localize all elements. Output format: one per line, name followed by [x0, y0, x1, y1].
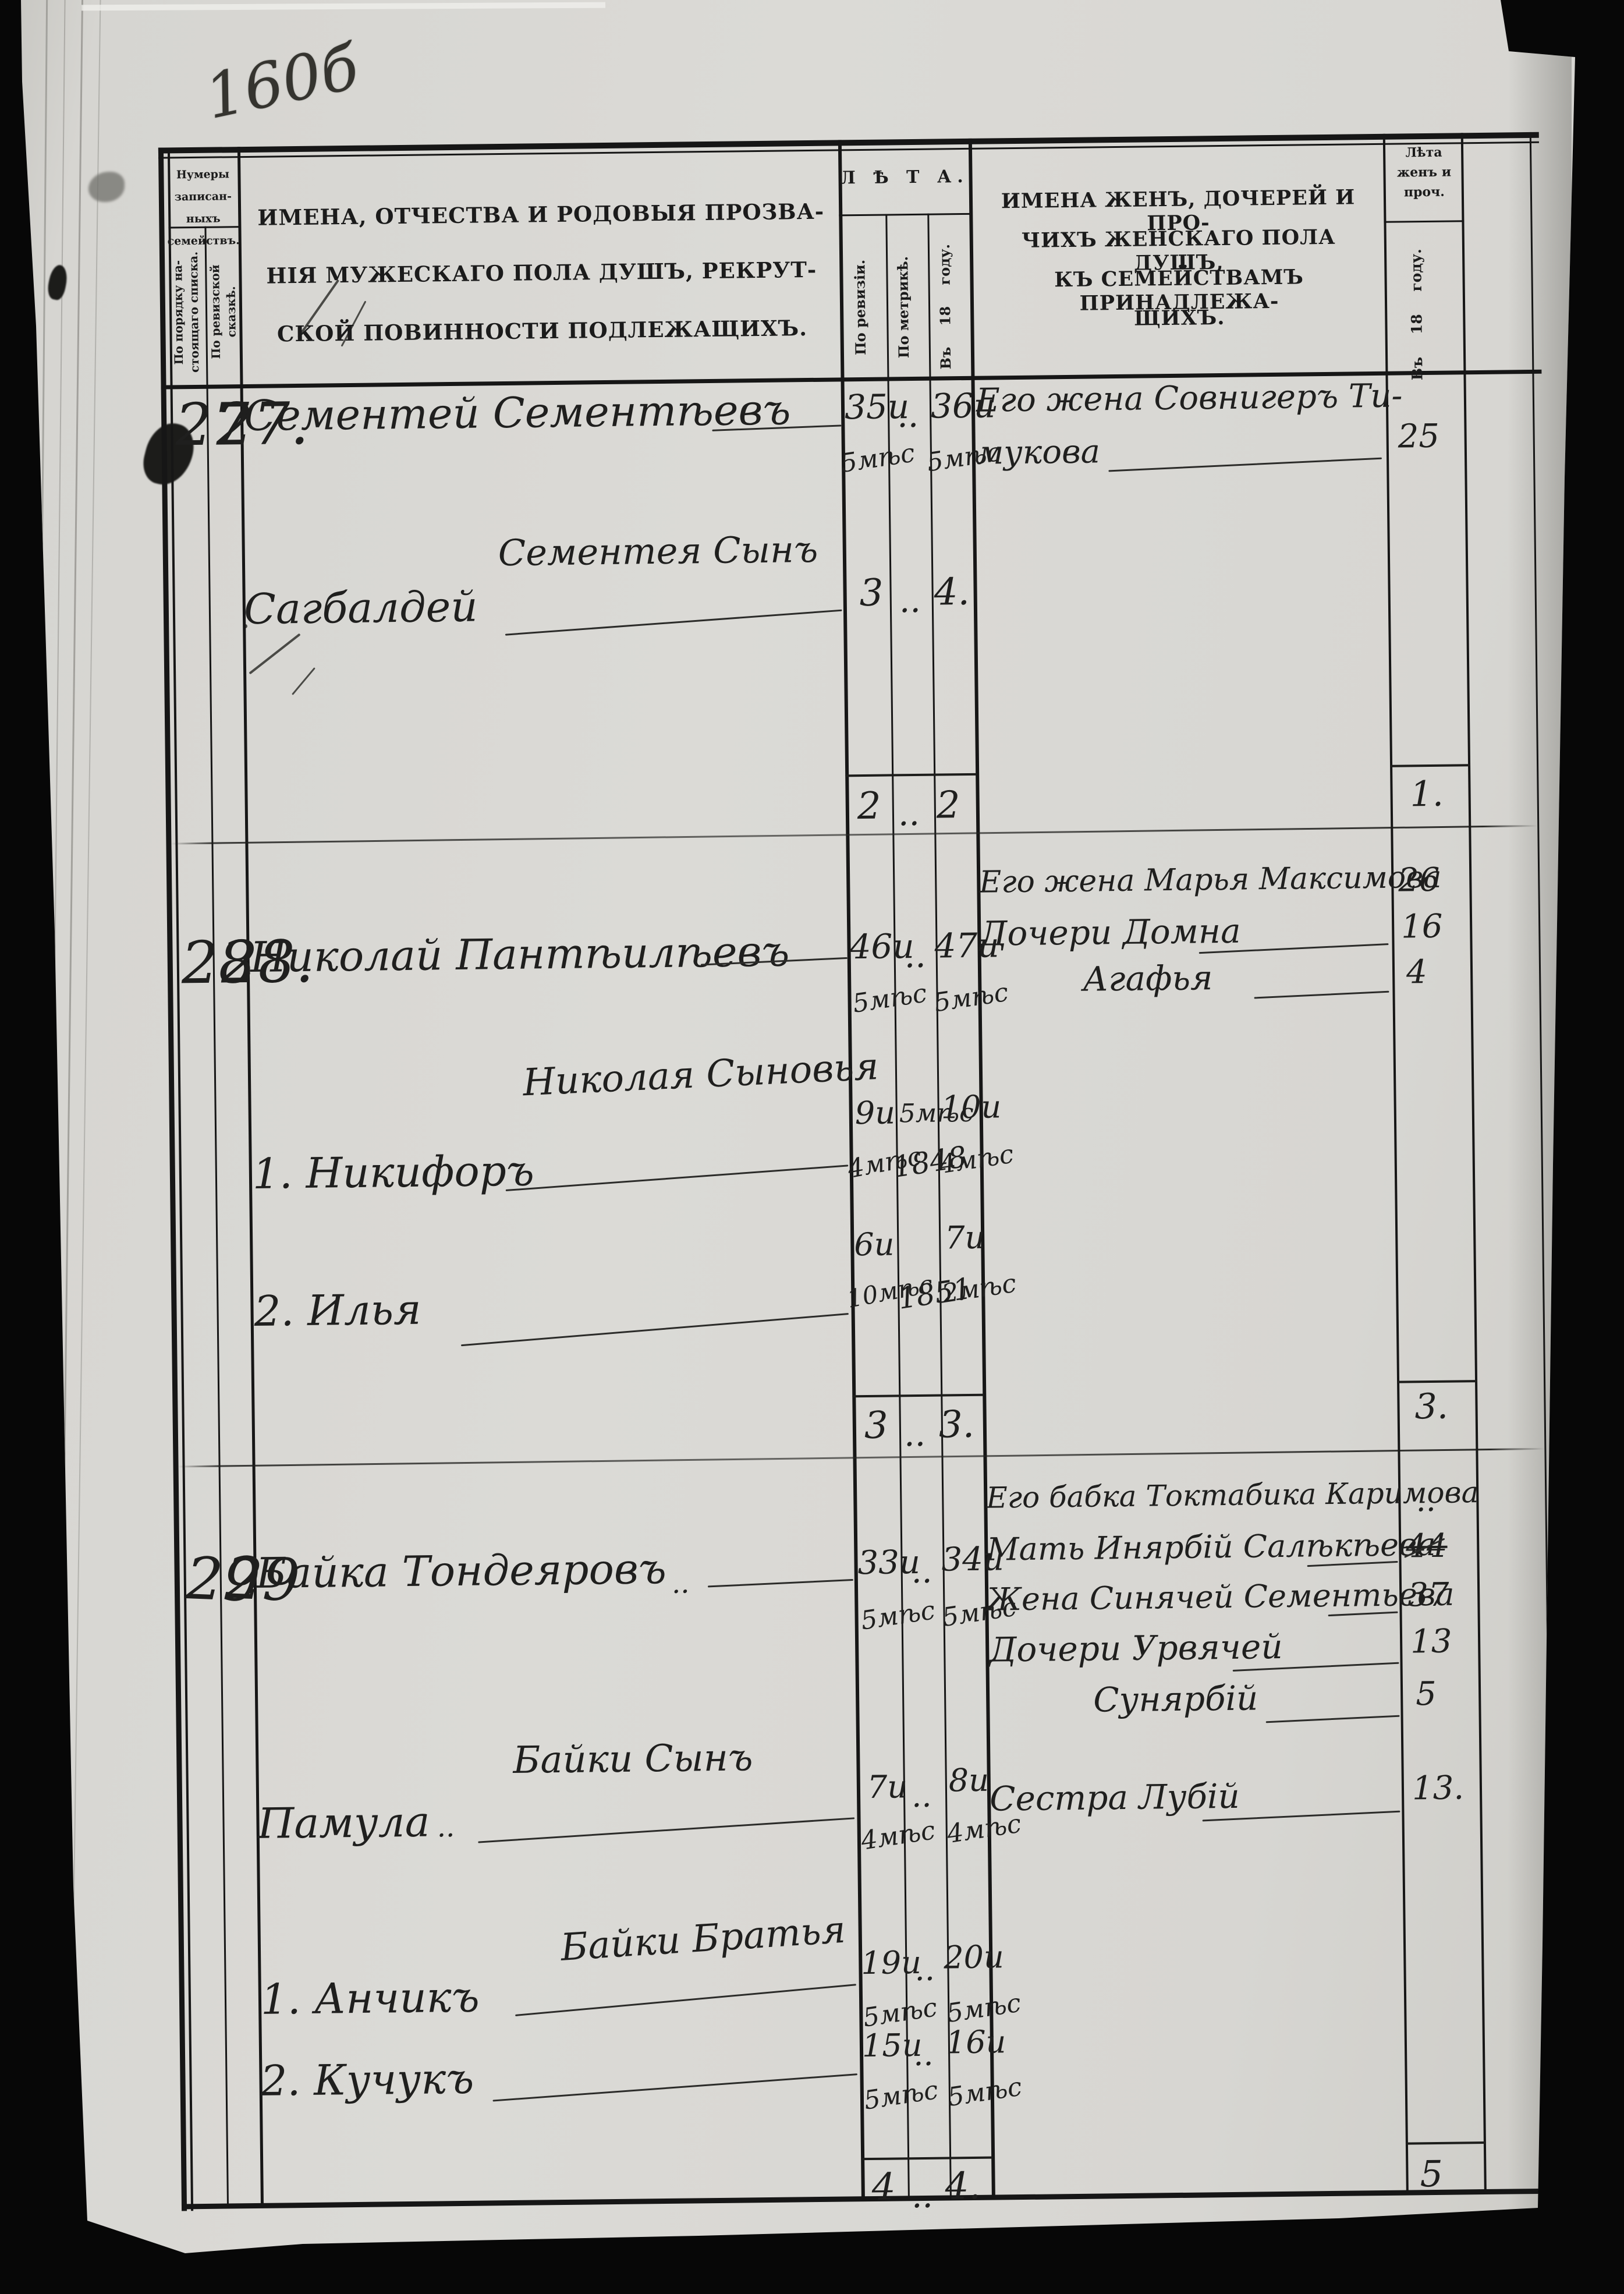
family-28-total-metrics: ..	[904, 1414, 926, 1454]
totals-rule	[845, 773, 977, 777]
divider-metrics-year18	[927, 214, 952, 2200]
totals-rule	[1397, 1380, 1477, 1383]
family-29-brother2-age-metrics: ..	[913, 2036, 934, 2073]
handwritten-dash	[505, 610, 842, 636]
family-28-daughter2-name: Агафья	[1083, 958, 1213, 999]
family-27-wife-age: 25	[1398, 417, 1439, 456]
family-29-son-age-revision-months: 4мѣс	[859, 1815, 937, 1856]
header-males-title-line3: СКОЙ ПОВИННОСТИ ПОДЛЕЖАЩИХЪ.	[245, 314, 839, 347]
family-28-daughter1-name: Дочери Домна	[980, 911, 1241, 954]
header-col-in-year18: Въ 18 году.	[935, 226, 960, 387]
totals-rule	[852, 1394, 984, 1398]
totals-rule	[861, 2157, 992, 2161]
family-29-brother2-age-revision-months: 5мѣс	[862, 2075, 940, 2116]
family-29-total-metrics: ..	[911, 2176, 933, 2215]
handwritten-dash	[478, 1817, 854, 1843]
family-29-brother1-age-year18: 20и	[944, 1938, 1004, 1976]
family-28-total-year18: 3.	[938, 1403, 974, 1447]
family-29-age-year18: 34и	[941, 1540, 1004, 1578]
page-fold-line	[54, 0, 83, 2294]
family-29-total-year18: 4.	[945, 2165, 981, 2208]
family-29-brother1-age-revision: 19и	[861, 1944, 921, 1981]
family-29-grandmother-name: Его бабка Токтабика Каримова	[986, 1475, 1479, 1515]
divider-femaleage-subheader	[1384, 220, 1464, 223]
family-separator	[178, 1448, 1545, 1468]
header-leta-title: Л Ѣ Т А.	[838, 167, 970, 189]
handwritten-dash	[1266, 1715, 1400, 1723]
header-females-age-line3: проч.	[1386, 182, 1463, 202]
ink-smudge	[88, 172, 125, 202]
family-29-brother2-age-year18: 16и	[946, 2023, 1006, 2061]
family-29-grandmother-age: ..	[1416, 1482, 1436, 1518]
scanned-page: 160б Нумеры записан- ныхъ семействъ.	[0, 0, 1624, 2286]
page-fold-line	[26, 0, 48, 2294]
family-28-total-revision: 3	[864, 1404, 888, 1447]
folio-number: 160б	[199, 31, 364, 133]
divider-leta-subheader	[839, 213, 971, 217]
family-29-brother1-name: 1. Анчикъ	[260, 1973, 480, 2024]
header-col-revision-tale: По ревизской сказкѣ.	[207, 239, 239, 385]
divider-order-revision	[204, 226, 229, 2208]
family-27-age-metrics: ..	[897, 395, 919, 435]
family-29-son-age-year18-months: 4мѣс	[945, 1808, 1023, 1849]
family-29-age-revision-months: 5мѣс	[859, 1595, 937, 1636]
family-28-son2-age-revision: 6и	[854, 1226, 895, 1263]
family-28-son1-name: 1. Никифоръ	[252, 1146, 534, 1198]
handwritten-dash	[1108, 458, 1382, 472]
family-28-age-year18: 47и	[934, 925, 999, 965]
handwritten-dash	[708, 1579, 853, 1588]
family-28-daughter2-age: 4	[1406, 953, 1427, 991]
family-27-son-age-revision: 3	[859, 572, 884, 615]
header-females-title-line4: ЩИХЪ.	[978, 304, 1380, 332]
family-29-sister-age: 13.	[1412, 1769, 1465, 1807]
family-29-brother1-age-metrics: ..	[914, 1951, 935, 1988]
divider-revision-metrics	[885, 214, 910, 2200]
family-28-total-women: 3.	[1414, 1386, 1448, 1428]
family-27-son-age-year18: 4.	[934, 571, 970, 614]
header-males-title-line2: НІЯ МУЖЕСКАГО ПОЛА ДУШЪ, РЕКРУТ-	[244, 256, 838, 289]
family-28-wife-age: 26	[1398, 861, 1440, 900]
family-27-son-name: Сагбалдей	[243, 582, 478, 634]
family-28-son1-age-revision: 9и	[854, 1094, 895, 1131]
header-males-title-line1: ИМЕНА, ОТЧЕСТВА И РОДОВЫЯ ПРОЗВА-	[244, 198, 838, 231]
handwritten-dash	[492, 2073, 857, 2101]
family-27-total-year18: 2	[936, 784, 960, 827]
family-29-daughter2-name: Сунярбій	[1093, 1678, 1258, 1719]
family-29-brothers-caption: Байки Братья	[559, 1909, 847, 1970]
family-29-patriarch-name: Байка Тондеяровъ	[256, 1544, 666, 1598]
header-col-by-metrics: По метрикѣ.	[894, 226, 919, 387]
family-29-son-name: Памула	[257, 1797, 430, 1848]
paper-edge-highlight	[81, 2, 605, 11]
ink-blot	[45, 264, 70, 302]
family-28-daughter1-age: 16	[1401, 908, 1443, 946]
family-27-total-revision: 2	[857, 785, 881, 828]
family-29-son-note: ..	[437, 1811, 455, 1843]
family-29-son-age-metrics: ..	[912, 1778, 932, 1814]
revision-table: Нумеры записан- ныхъ семействъ. По поряд…	[168, 132, 1565, 2221]
family-28-sons-caption: Николая Сыновья	[522, 1045, 880, 1104]
family-27-total-metrics: ..	[898, 794, 920, 833]
family-27-son-age-metrics: ..	[899, 580, 921, 620]
header-col-order: По порядку на- стоящаго списка.	[170, 239, 205, 385]
family-28-son2-name: 2. Илья	[254, 1285, 421, 1336]
header-females-age-line2: женъ и	[1385, 162, 1462, 182]
family-29-son-age-revision: 7и	[867, 1768, 908, 1806]
family-29-wife-age: 37	[1407, 1576, 1449, 1615]
family-28-son1-age-year18: 10и	[941, 1088, 1001, 1125]
family-29-sister-name: Сестра Лубій	[990, 1776, 1240, 1819]
family-28-wife-name: Его жена Марья Максимова	[979, 860, 1442, 900]
family-29-brother1-age-year18-months: 5мѣс	[945, 1988, 1023, 2029]
totals-rule	[1406, 2141, 1486, 2145]
family-29-age-year18-months: 5мѣс	[940, 1592, 1018, 1633]
page-fold-line	[68, 0, 101, 2294]
family-28-age-metrics: ..	[904, 936, 926, 975]
totals-rule	[1390, 764, 1470, 767]
family-separator	[171, 825, 1537, 845]
handwritten-dash	[461, 1313, 849, 1346]
family-29-brother2-name: 2. Кучукъ	[260, 2054, 474, 2105]
header-females-age-line1: Лѣта	[1385, 142, 1462, 162]
family-29-total-revision: 4	[871, 2166, 896, 2209]
handwritten-dash	[1254, 991, 1389, 999]
family-27-wife-line2: мукова	[977, 433, 1101, 472]
header-family-numbers-line1: Нумеры записан-	[164, 163, 242, 208]
handwritten-dash	[515, 1984, 856, 2016]
divider-femaleages-margin	[1461, 133, 1487, 2194]
family-28-son2-age-year18: 7и	[945, 1219, 985, 1256]
family-27-patriarch-name: Сементей Сементѣевъ	[244, 385, 791, 440]
family-28-patriarch-name: Николай Пантѣилѣевъ	[250, 926, 790, 982]
family-29-son-caption: Байки Сынъ	[513, 1736, 753, 1782]
family-27-son-caption: Сементея Сынъ	[498, 528, 818, 574]
family-27-wife-line1: Его жена Совнигеръ Ти-	[976, 377, 1403, 419]
handwritten-dash	[506, 1164, 849, 1191]
header-col-by-revision: По ревизіи.	[851, 227, 876, 388]
family-29-patriarch-note: ..	[672, 1567, 690, 1599]
family-29-brother2-age-year18-months: 5мѣс	[946, 2072, 1024, 2112]
family-29-daughter1-age: 13	[1410, 1623, 1452, 1661]
family-29-daughter1-name: Дочери Урвячей	[989, 1627, 1283, 1670]
family-29-son-age-year18: 8и	[948, 1762, 989, 1799]
family-29-age-metrics: ..	[911, 1553, 932, 1591]
family-27-age-revision-months: 5мѣс	[839, 438, 917, 479]
family-28-age-revision-months: 5мѣс	[850, 978, 928, 1019]
family-29-mother-name: Мать Инярбій Салѣкѣева	[987, 1526, 1436, 1568]
family-28-age-year18-months: 5мѣс	[932, 978, 1010, 1018]
family-29-daughter2-age: 5	[1416, 1675, 1437, 1713]
header-females-age-group: Лѣта женъ и проч.	[1385, 142, 1463, 202]
family-27-total-women: 1.	[1410, 774, 1444, 815]
family-29-total-women: 5	[1420, 2153, 1443, 2195]
header-females-age-col: Въ 18 году.	[1407, 230, 1434, 399]
